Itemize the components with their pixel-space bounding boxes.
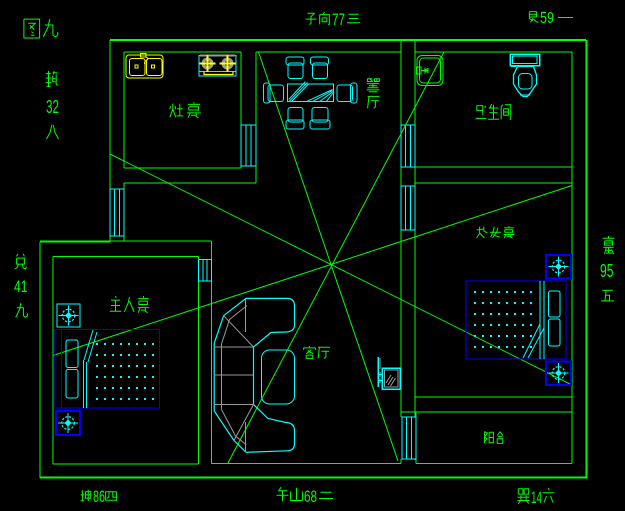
svg-text:41: 41	[14, 277, 28, 296]
svg-text:59: 59	[540, 10, 554, 27]
svg-text:77: 77	[332, 11, 345, 29]
svg-text:68: 68	[304, 487, 317, 506]
svg-text:32: 32	[46, 97, 59, 117]
svg-text:86: 86	[93, 488, 105, 506]
svg-text:14: 14	[531, 488, 542, 507]
svg-text:95: 95	[600, 261, 614, 281]
